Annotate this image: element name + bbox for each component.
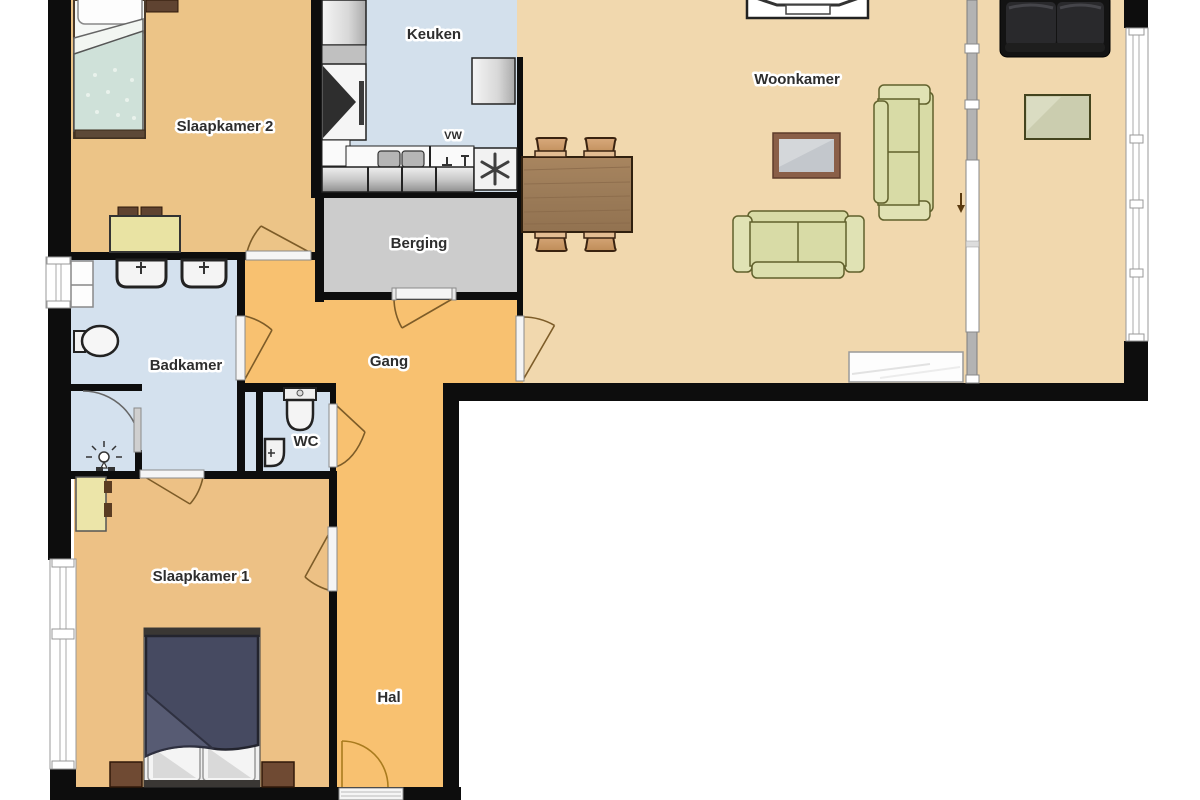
svg-text:Badkamer: Badkamer	[150, 357, 223, 374]
svg-text:Berging: Berging	[391, 235, 448, 252]
svg-text:Hal: Hal	[377, 689, 400, 706]
svg-text:Woonkamer: Woonkamer	[754, 71, 840, 88]
svg-text:Slaapkamer 2: Slaapkamer 2	[177, 118, 274, 135]
svg-text:VW: VW	[444, 130, 462, 142]
svg-text:Slaapkamer 1: Slaapkamer 1	[153, 568, 250, 585]
svg-text:Gang: Gang	[370, 353, 408, 370]
svg-text:WC: WC	[294, 433, 319, 450]
svg-text:Keuken: Keuken	[407, 26, 461, 43]
